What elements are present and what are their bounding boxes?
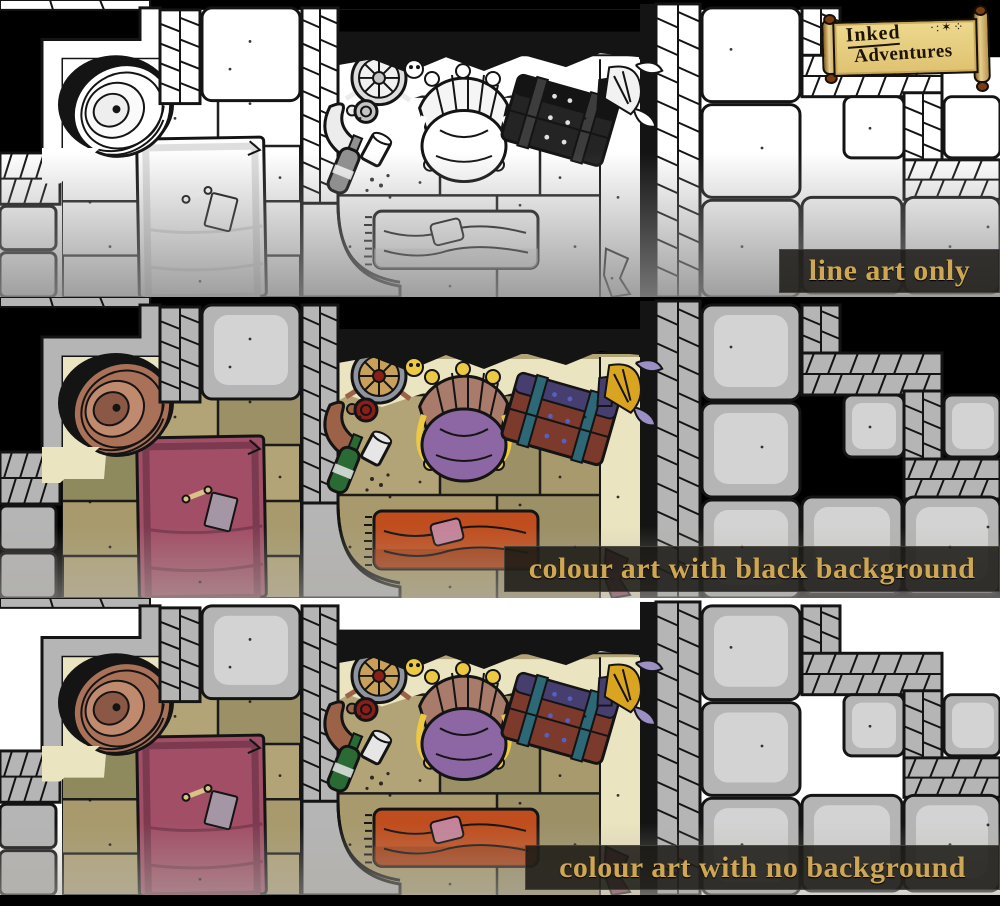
stone-block: [202, 305, 300, 399]
throne-with-skeleton: [419, 662, 509, 779]
caption-label: colour art with black background: [529, 552, 976, 586]
pink-rug: [137, 735, 267, 895]
skull: [405, 60, 423, 78]
bed: [364, 211, 538, 268]
stone-block: [202, 8, 300, 101]
wall-shadow-edge: [640, 4, 656, 297]
caption-line-art: line art only: [779, 249, 1000, 293]
stone-block: [202, 606, 300, 699]
wine-goblet: [355, 101, 377, 123]
wall-blocks-bottom-left: [0, 804, 56, 895]
rope-wall-upper: [160, 10, 200, 104]
caption-colour-black: colour art with black background: [504, 546, 1000, 592]
throne-with-skeleton: [419, 362, 509, 481]
top-wall-strip: [0, 0, 150, 10]
skull: [405, 658, 423, 676]
caption-label: line art only: [809, 254, 971, 288]
panel-colour-black-bg: colour art with black background: [0, 297, 1000, 598]
top-wall-strip: [0, 598, 150, 608]
pink-rug: [137, 436, 267, 598]
rope-wall-right: [656, 4, 700, 297]
bottom-border: [0, 895, 1000, 906]
wall-blocks-bottom-left: [0, 206, 56, 297]
rope-wall-upper: [160, 307, 200, 402]
rope-wall-upper: [160, 608, 200, 702]
bed: [364, 809, 538, 866]
logo-doodles: ·:✶⁘: [930, 19, 966, 35]
caption-colour-white: colour art with no background: [525, 845, 1000, 890]
inked-adventures-logo: Inked ·:✶⁘ Adventures: [821, 9, 991, 91]
wine-goblet: [355, 399, 377, 421]
panel-colour-no-bg: colour art with no background: [0, 598, 1000, 895]
wall-blocks-bottom-left: [0, 506, 56, 598]
comparison-sheet: Inked ·:✶⁘ Adventures line art only: [0, 0, 1000, 906]
throne-with-skeleton: [419, 64, 509, 181]
wine-goblet: [355, 699, 377, 721]
pink-rug: [137, 137, 267, 297]
top-wall-strip: [0, 297, 150, 307]
panel-line-art: Inked ·:✶⁘ Adventures line art only: [0, 0, 1000, 297]
skull: [405, 358, 423, 376]
caption-label: colour art with no background: [559, 851, 966, 885]
